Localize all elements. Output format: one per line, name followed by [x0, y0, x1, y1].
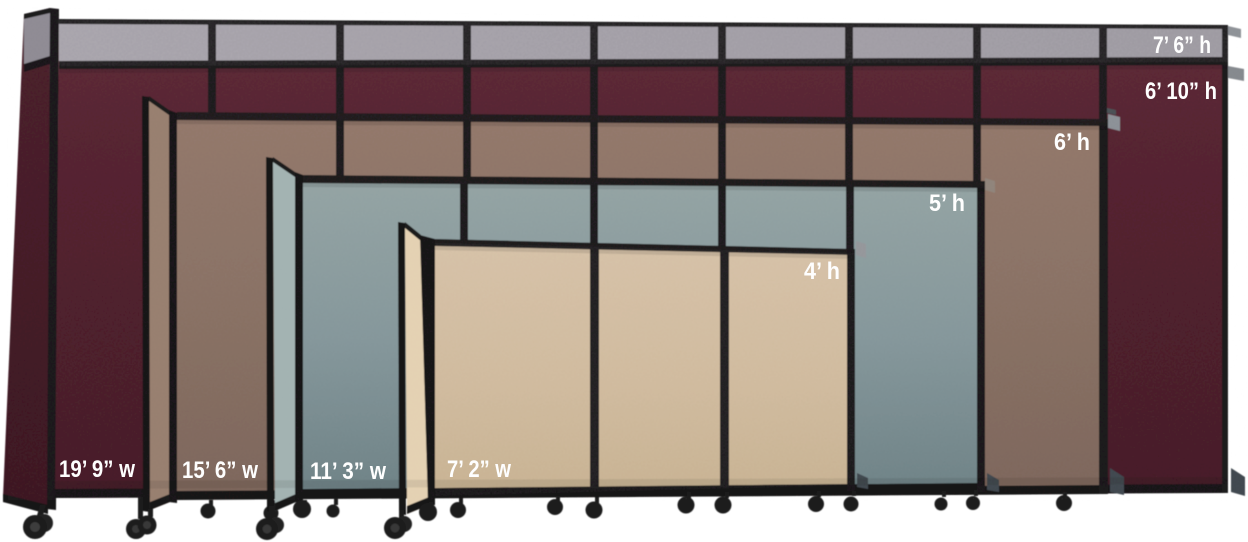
svg-text:6’ 10” h: 6’ 10” h — [1145, 78, 1217, 105]
svg-text:19’ 9” w: 19’ 9” w — [59, 456, 135, 483]
svg-text:11’ 3” w: 11’ 3” w — [310, 458, 386, 485]
svg-text:15’ 6” w: 15’ 6” w — [182, 457, 258, 484]
svg-text:6’ h: 6’ h — [1054, 129, 1090, 156]
svg-text:5’ h: 5’ h — [929, 190, 965, 217]
svg-text:4’ h: 4’ h — [804, 258, 840, 285]
svg-text:7’ 6” h: 7’ 6” h — [1153, 32, 1211, 59]
svg-text:7’ 2” w: 7’ 2” w — [447, 456, 511, 483]
